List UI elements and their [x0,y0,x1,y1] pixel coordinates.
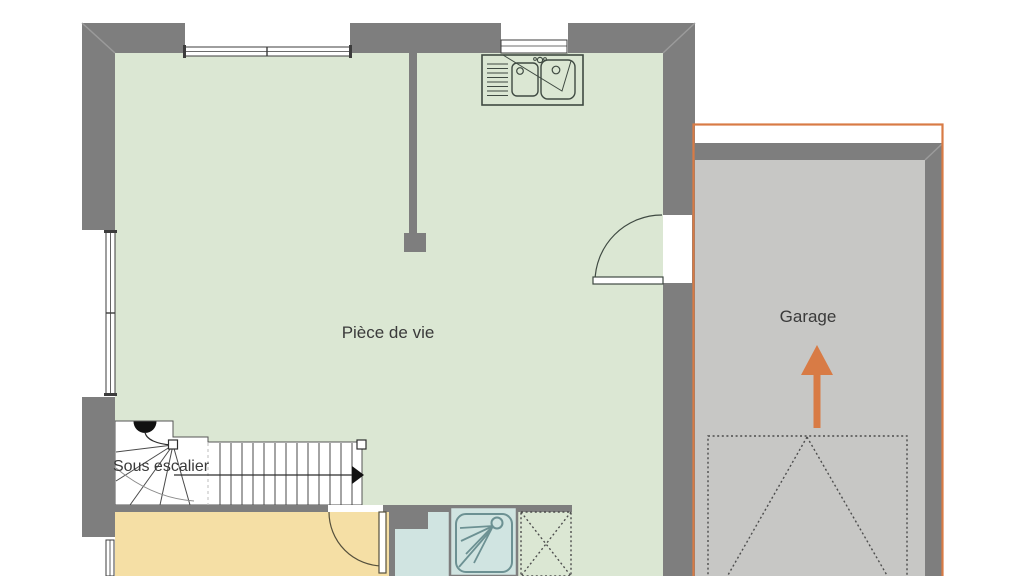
wall-partition [409,53,417,235]
garage-wall-top [695,143,943,160]
garage-wall-right [925,160,943,576]
wall-segment [350,23,501,53]
window-icon [501,40,567,53]
stair-newel-post [169,440,178,449]
garage-label: Garage [780,307,837,326]
shower-icon [450,507,517,576]
wall-segment [115,505,328,512]
wall-segment [663,23,695,576]
door-opening [663,215,692,283]
living-room-label: Pièce de vie [342,323,435,342]
window-icon [183,45,352,58]
wall-segment [82,23,115,230]
wall-partition-cap [404,233,426,252]
wall-segment [389,512,395,576]
door-opening [328,505,383,512]
floor-plan-svg: Pièce de vie Sous escalier Garage [0,0,1024,576]
window-icon [106,540,114,576]
stair-newel-post [357,440,366,449]
window-icon [104,230,117,396]
wall-stub [395,512,428,529]
wall-segment [82,397,115,537]
floor-plan-canvas: Pièce de vie Sous escalier Garage [0,0,1024,576]
lower-left-room-floor[interactable] [115,512,389,576]
under-stairs-label: Sous escalier [113,458,210,475]
